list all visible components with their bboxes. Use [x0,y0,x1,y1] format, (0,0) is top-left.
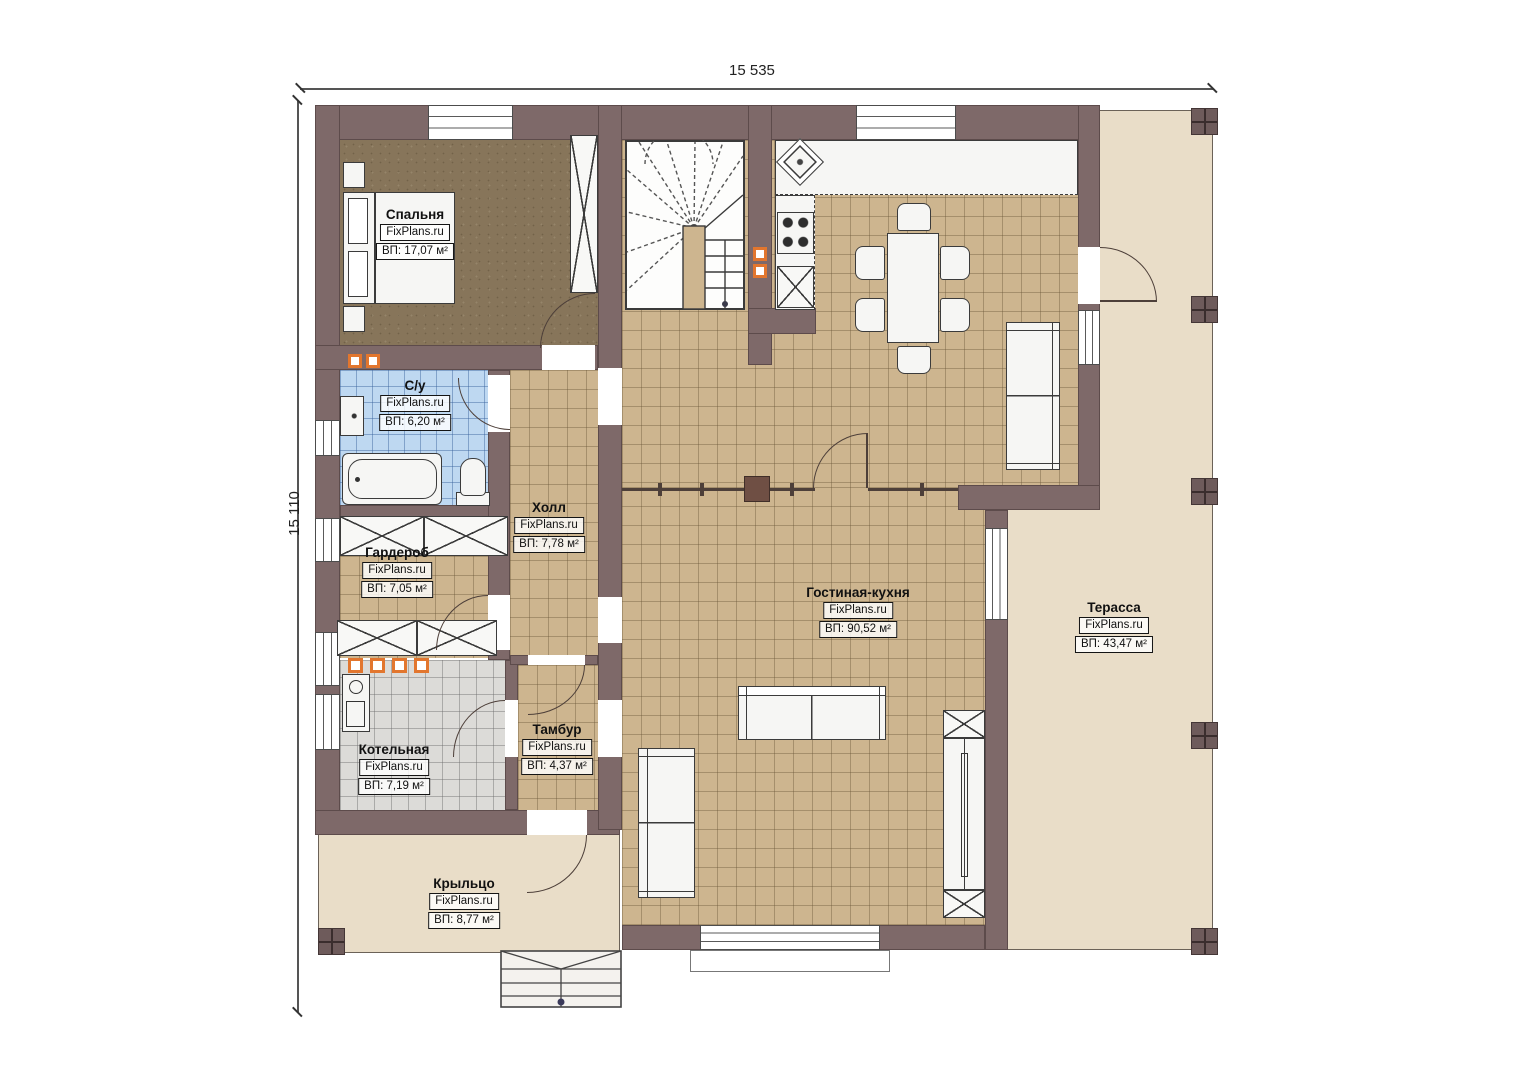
terrace-column [1191,722,1218,749]
room-label-bedroom: Спальня FixPlans.ru ВП: 17,07 м² [376,207,454,260]
room-area: ВП: 90,52 м² [819,621,897,638]
hall-living-opening-2 [598,597,622,643]
pillow [348,251,368,297]
sofa-armrest [879,687,887,739]
room-name: Котельная [358,742,430,757]
sofa-armrest [1007,463,1059,471]
sofa-armrest [1007,323,1059,331]
washbasin [340,396,364,436]
bedroom-window [428,105,513,140]
room-area: ВП: 7,05 м² [361,581,433,598]
glass-partition-right [868,488,958,491]
boiler-dial [349,680,363,694]
hall-living-opening-1 [598,368,622,425]
radiator [348,658,363,673]
room-area: ВП: 6,20 м² [379,414,451,431]
room-label-terrace: Терасса FixPlans.ru ВП: 43,47 м² [1075,600,1153,653]
closet [337,620,417,656]
watermark: FixPlans.ru [522,739,592,756]
radiator [414,658,429,673]
pillow [348,198,368,244]
boiler-door-opening [505,700,518,757]
dimension-width: 15 535 [729,62,775,79]
wardrobe-window-1 [315,518,340,562]
room-area: ВП: 4,37 м² [521,758,593,775]
partition-door-leaf [866,433,868,488]
bathtub-inner [348,459,437,499]
sofa-armrest [739,687,747,739]
room-area: ВП: 7,19 м² [358,778,430,795]
bathroom-window [315,420,340,456]
boiler [342,674,370,732]
room-label-porch: Крыльцо FixPlans.ru ВП: 8,77 м² [428,876,500,929]
sofa-right [1006,322,1060,470]
porch-column [318,928,345,955]
partition-mullion [658,483,662,496]
watermark: FixPlans.ru [380,395,450,412]
room-name: Холл [513,500,585,515]
floor-plan: Спальня FixPlans.ru ВП: 17,07 м² С/у Fix… [0,0,1528,1080]
watermark: FixPlans.ru [362,562,432,579]
sofa-armrest [639,749,694,757]
toilet-bowl [460,458,486,496]
terrace-column [1191,296,1218,323]
room-name: Гостиная-кухня [806,585,909,600]
bay-window-sill [690,950,890,972]
wall-right-upper [1078,105,1100,510]
living-window-terrace [1078,310,1100,365]
dining-chair [940,246,970,280]
watermark: FixPlans.ru [380,224,450,241]
dimension-line-left [297,100,299,1012]
dining-chair [855,246,885,280]
terrace-column [1191,108,1218,135]
glass-partition-left [622,488,815,491]
tv-cabinet [943,890,985,918]
porch-steps [500,950,622,1008]
kitchen-window [856,105,956,140]
floor-plan-page: Спальня FixPlans.ru ВП: 17,07 м² С/у Fix… [0,0,1528,1080]
bathtub-drain [355,477,360,482]
watermark: FixPlans.ru [514,517,584,534]
room-label-hall: Холл FixPlans.ru ВП: 7,78 м² [513,500,585,553]
terrace-column [1191,478,1218,505]
vestibule-living-opening [598,700,622,757]
vestibule-door-opening [528,655,585,665]
room-name: Терасса [1075,600,1153,615]
dining-chair [897,346,931,374]
room-name: Спальня [376,207,454,222]
room-area: ВП: 7,78 м² [513,536,585,553]
boiler-body [346,701,365,727]
dimension-height: 15 110 [286,491,303,536]
sofa-armrest [639,891,694,899]
wall-kitchen-stub [748,308,816,334]
entrance-door-opening [527,810,587,835]
sofa-back [1052,323,1061,469]
nightstand [343,162,365,188]
room-label-living-kitchen: Гостиная-кухня FixPlans.ru ВП: 90,52 м² [806,585,909,638]
partition-mullion [790,483,794,496]
room-label-wardrobe: Гардероб FixPlans.ru ВП: 7,05 м² [361,545,433,598]
room-label-vestibule: Тамбур FixPlans.ru ВП: 4,37 м² [521,722,593,775]
dining-chair [940,298,970,332]
sofa-horizontal [738,686,886,740]
dimension-line-top [300,88,1213,90]
kitchen-counter-top [775,140,1078,195]
terrace-door-opening [1078,247,1100,304]
tv-cabinet [943,710,985,738]
room-name: Тамбур [521,722,593,737]
room-label-bathroom: С/у FixPlans.ru ВП: 6,20 м² [379,378,451,431]
dining-chair [897,203,931,231]
bathtub [342,453,442,505]
closet [424,516,508,556]
room-name: С/у [379,378,451,393]
radiator [366,354,380,368]
nightstand [343,306,365,332]
terrace-floor-lower [1008,490,1213,950]
room-label-boiler-room: Котельная FixPlans.ru ВП: 7,19 м² [358,742,430,795]
living-window-right [985,528,1008,620]
watermark: FixPlans.ru [1079,617,1149,634]
room-name: Крыльцо [428,876,500,891]
boiler-room-window [315,694,340,750]
tv-unit-line [964,739,965,889]
sofa-vertical [638,748,695,898]
partition-mullion [920,483,924,496]
wall-living-terrace-h [958,485,1100,510]
staircase [625,140,745,310]
radiator [753,264,767,278]
room-name: Гардероб [361,545,433,560]
terrace-door-leaf [1100,300,1157,302]
bedroom-wardrobe [570,135,598,293]
dining-table [887,233,939,343]
radiator [370,658,385,673]
radiator [392,658,407,673]
living-window-bottom [700,925,880,950]
watermark: FixPlans.ru [429,893,499,910]
tv-unit [943,738,985,890]
sofa-back [739,687,885,696]
radiator [348,354,362,368]
watermark: FixPlans.ru [359,759,429,776]
room-area: ВП: 43,47 м² [1075,636,1153,653]
sofa-back [639,749,648,897]
partition-post [744,476,770,502]
radiator [753,247,767,261]
terrace-column [1191,928,1218,955]
room-area: ВП: 17,07 м² [376,243,454,260]
room-area: ВП: 8,77 м² [428,912,500,929]
dining-chair [855,298,885,332]
stove [777,212,814,254]
bedroom-door-opening [542,345,595,370]
watermark: FixPlans.ru [823,602,893,619]
kitchen-appliance [777,266,814,308]
partition-mullion [700,483,704,496]
